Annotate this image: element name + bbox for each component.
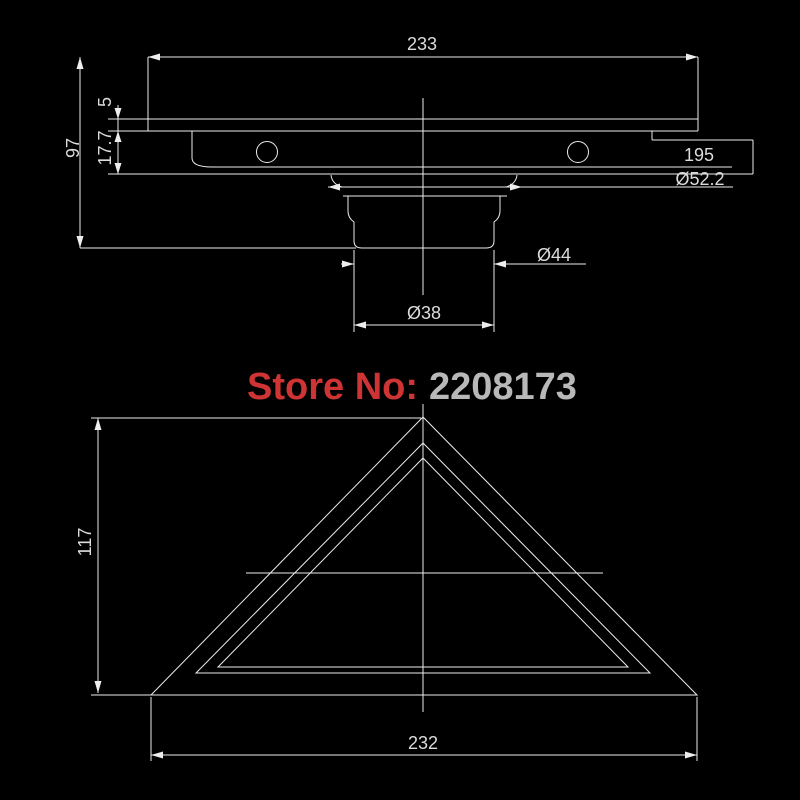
arrowhead: [494, 261, 506, 268]
dim-233: 233: [407, 34, 437, 54]
arrowhead: [354, 322, 366, 329]
triangle-face-view: 117 232: [75, 404, 697, 761]
dim-97: 97: [63, 138, 83, 158]
dim-5: 5: [95, 97, 115, 107]
drain-dimension-drawing: 233 5 17.7 97: [0, 0, 800, 800]
arrowhead: [148, 54, 160, 61]
arrowhead: [151, 752, 163, 759]
dim-117: 117: [75, 528, 95, 557]
dim-17-7: 17.7: [95, 130, 115, 165]
arrowhead: [95, 681, 102, 693]
arrowhead: [115, 131, 122, 142]
arrowhead: [342, 261, 354, 268]
side-section-view: 233 5 17.7 97: [63, 34, 753, 332]
arrowhead: [77, 236, 84, 248]
body-left-wall: [192, 131, 212, 167]
arrowhead: [482, 322, 494, 329]
dim-44: Ø44: [537, 245, 571, 265]
screw-hole-right: [568, 142, 589, 163]
arrowhead: [328, 184, 340, 191]
arrowhead: [510, 184, 522, 191]
arrowhead: [77, 57, 84, 69]
watermark-number: 2208173: [429, 366, 577, 408]
arrowhead: [95, 418, 102, 430]
drawing-canvas: 233 5 17.7 97: [0, 0, 800, 800]
dim-195: 195: [684, 145, 714, 165]
arrowhead: [115, 163, 122, 174]
arrowhead: [686, 54, 698, 61]
arrowhead: [685, 752, 697, 759]
dim-52-2: Ø52.2: [675, 169, 724, 189]
trap-outline: [348, 196, 500, 248]
screw-hole-left: [257, 142, 278, 163]
arrowhead: [115, 108, 122, 119]
dim-232: 232: [408, 733, 438, 753]
dim-38: Ø38: [407, 303, 441, 323]
watermark-label: Store No:: [247, 366, 418, 408]
store-watermark: Store No: 2208173: [247, 366, 577, 408]
